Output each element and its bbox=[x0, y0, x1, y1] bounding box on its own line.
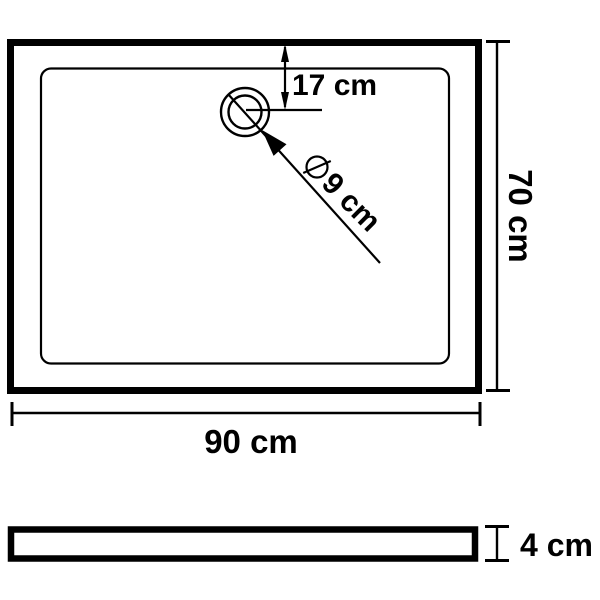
thickness-label: 4 cm bbox=[520, 527, 593, 563]
shower-tray-dimension-diagram: 17 cm 9 cm 70 cm bbox=[0, 0, 600, 600]
drain-offset-label: 17 cm bbox=[292, 69, 377, 102]
side-view: 4 cm bbox=[11, 527, 593, 564]
height-dimension: 70 cm bbox=[486, 42, 539, 391]
width-label: 90 cm bbox=[204, 423, 298, 460]
height-label: 70 cm bbox=[502, 169, 539, 263]
width-dimension: 90 cm bbox=[12, 402, 480, 460]
tray-profile bbox=[11, 530, 475, 559]
diagram-canvas: 17 cm 9 cm 70 cm bbox=[0, 0, 600, 600]
thickness-dimension: 4 cm bbox=[485, 527, 593, 564]
top-view: 17 cm 9 cm 70 cm bbox=[11, 42, 540, 461]
